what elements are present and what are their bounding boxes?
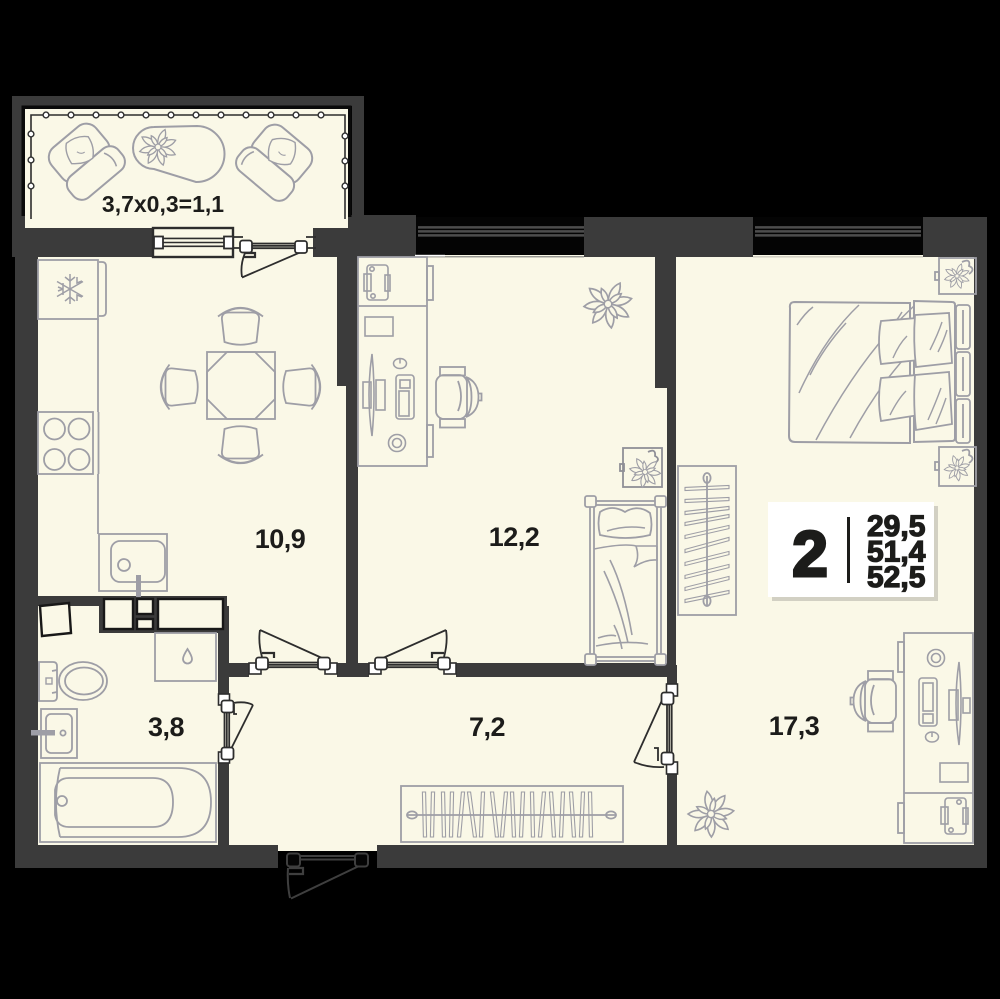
svg-text:52,5: 52,5	[867, 561, 925, 594]
svg-text:3,7x0,3=1,1: 3,7x0,3=1,1	[102, 191, 224, 217]
svg-text:12,2: 12,2	[489, 522, 540, 552]
svg-text:7,2: 7,2	[469, 712, 505, 742]
svg-text:3,8: 3,8	[148, 712, 185, 742]
svg-text:10,9: 10,9	[255, 524, 306, 554]
svg-text:2: 2	[792, 518, 828, 590]
svg-text:17,3: 17,3	[769, 711, 820, 741]
